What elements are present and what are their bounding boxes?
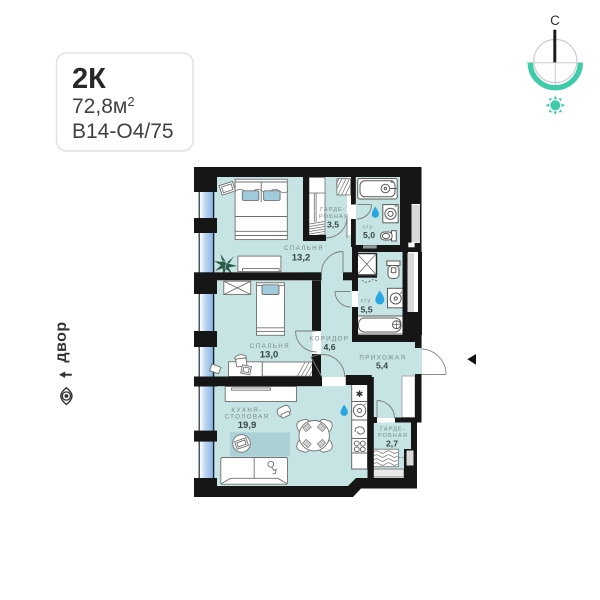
svg-text:двор: двор: [53, 321, 70, 362]
svg-text:13,2: 13,2: [292, 253, 311, 264]
svg-text:ГАРДЕ-: ГАРДЕ-: [380, 427, 406, 433]
svg-text:2К: 2К: [72, 63, 106, 95]
svg-text:СПАЛЬНЯ: СПАЛЬНЯ: [284, 245, 324, 252]
svg-text:4,6: 4,6: [323, 342, 335, 352]
svg-text:2,7: 2,7: [386, 439, 398, 449]
svg-text:В14-О4/75: В14-О4/75: [72, 120, 174, 143]
svg-text:13,0: 13,0: [260, 350, 279, 361]
svg-text:3,5: 3,5: [327, 220, 339, 230]
svg-text:5,5: 5,5: [360, 305, 372, 315]
svg-text:✱: ✱: [356, 389, 364, 399]
svg-text:5,4: 5,4: [376, 361, 388, 371]
svg-text:с/у: с/у: [361, 298, 371, 304]
svg-text:19,9: 19,9: [238, 420, 257, 431]
svg-text:72,8м2: 72,8м2: [72, 94, 135, 118]
svg-text:5,0: 5,0: [363, 230, 375, 240]
svg-text:С: С: [550, 13, 560, 28]
svg-text:ГАРДЕ-: ГАРДЕ-: [320, 207, 346, 213]
